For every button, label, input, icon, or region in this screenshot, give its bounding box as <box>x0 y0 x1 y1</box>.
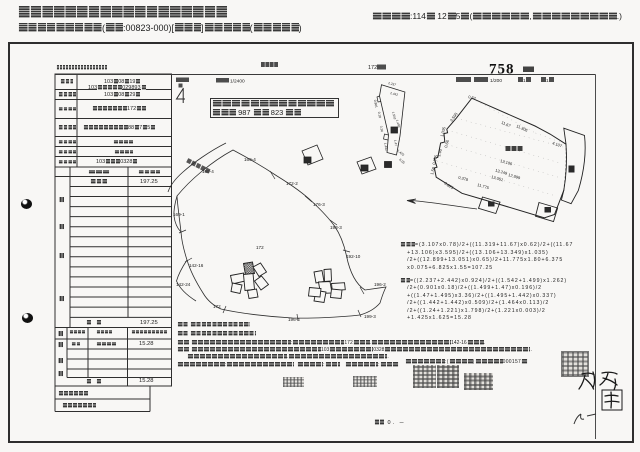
svg-text:169-4: 169-4 <box>244 157 256 162</box>
svg-text:3.36: 3.36 <box>379 125 384 132</box>
svg-text:0.378: 0.378 <box>458 175 470 183</box>
svg-text:0.18: 0.18 <box>377 111 382 118</box>
svg-text:196-4: 196-4 <box>288 317 300 322</box>
svg-text:193-3: 193-3 <box>330 225 342 230</box>
svg-text:2.442: 2.442 <box>390 91 399 97</box>
svg-text:1/200: 1/200 <box>490 78 502 84</box>
svg-text:1.442: 1.442 <box>383 142 388 151</box>
svg-text:12.899: 12.899 <box>508 172 522 180</box>
svg-text:1: 1 <box>523 78 526 84</box>
svg-text:13.106: 13.106 <box>500 158 514 166</box>
svg-text:1: 1 <box>546 78 549 84</box>
svg-text:11.67: 11.67 <box>501 120 513 129</box>
svg-text:1.47: 1.47 <box>393 139 398 146</box>
svg-text:192-10: 192-10 <box>346 254 361 259</box>
svg-text:1.542: 1.542 <box>391 111 397 120</box>
svg-text:13.051: 13.051 <box>491 174 505 182</box>
svg-text:169-1: 169-1 <box>173 212 185 217</box>
svg-text:1.035: 1.035 <box>439 126 447 138</box>
svg-text:172-2: 172-2 <box>286 181 298 186</box>
svg-text:6.825: 6.825 <box>443 181 455 191</box>
svg-text:172: 172 <box>256 245 264 250</box>
svg-text:6.05: 6.05 <box>398 158 405 165</box>
svg-text:1.425: 1.425 <box>396 149 405 157</box>
svg-text:1/2400: 1/2400 <box>230 79 245 85</box>
svg-text:172: 172 <box>213 304 221 309</box>
svg-text:11.775: 11.775 <box>477 182 491 190</box>
svg-text:0.901: 0.901 <box>373 99 378 108</box>
svg-text:142-16: 142-16 <box>189 263 204 268</box>
svg-text:2.237: 2.237 <box>388 81 397 87</box>
svg-text:758: 758 <box>489 62 515 78</box>
svg-text:196-2: 196-2 <box>374 282 386 287</box>
svg-text:142-24: 142-24 <box>176 282 191 287</box>
svg-text:199-3: 199-3 <box>364 314 376 319</box>
svg-text:172: 172 <box>368 65 377 71</box>
svg-text:176-3: 176-3 <box>313 202 325 207</box>
svg-text:0.66: 0.66 <box>443 139 450 149</box>
svg-text:11.306: 11.306 <box>516 123 530 133</box>
